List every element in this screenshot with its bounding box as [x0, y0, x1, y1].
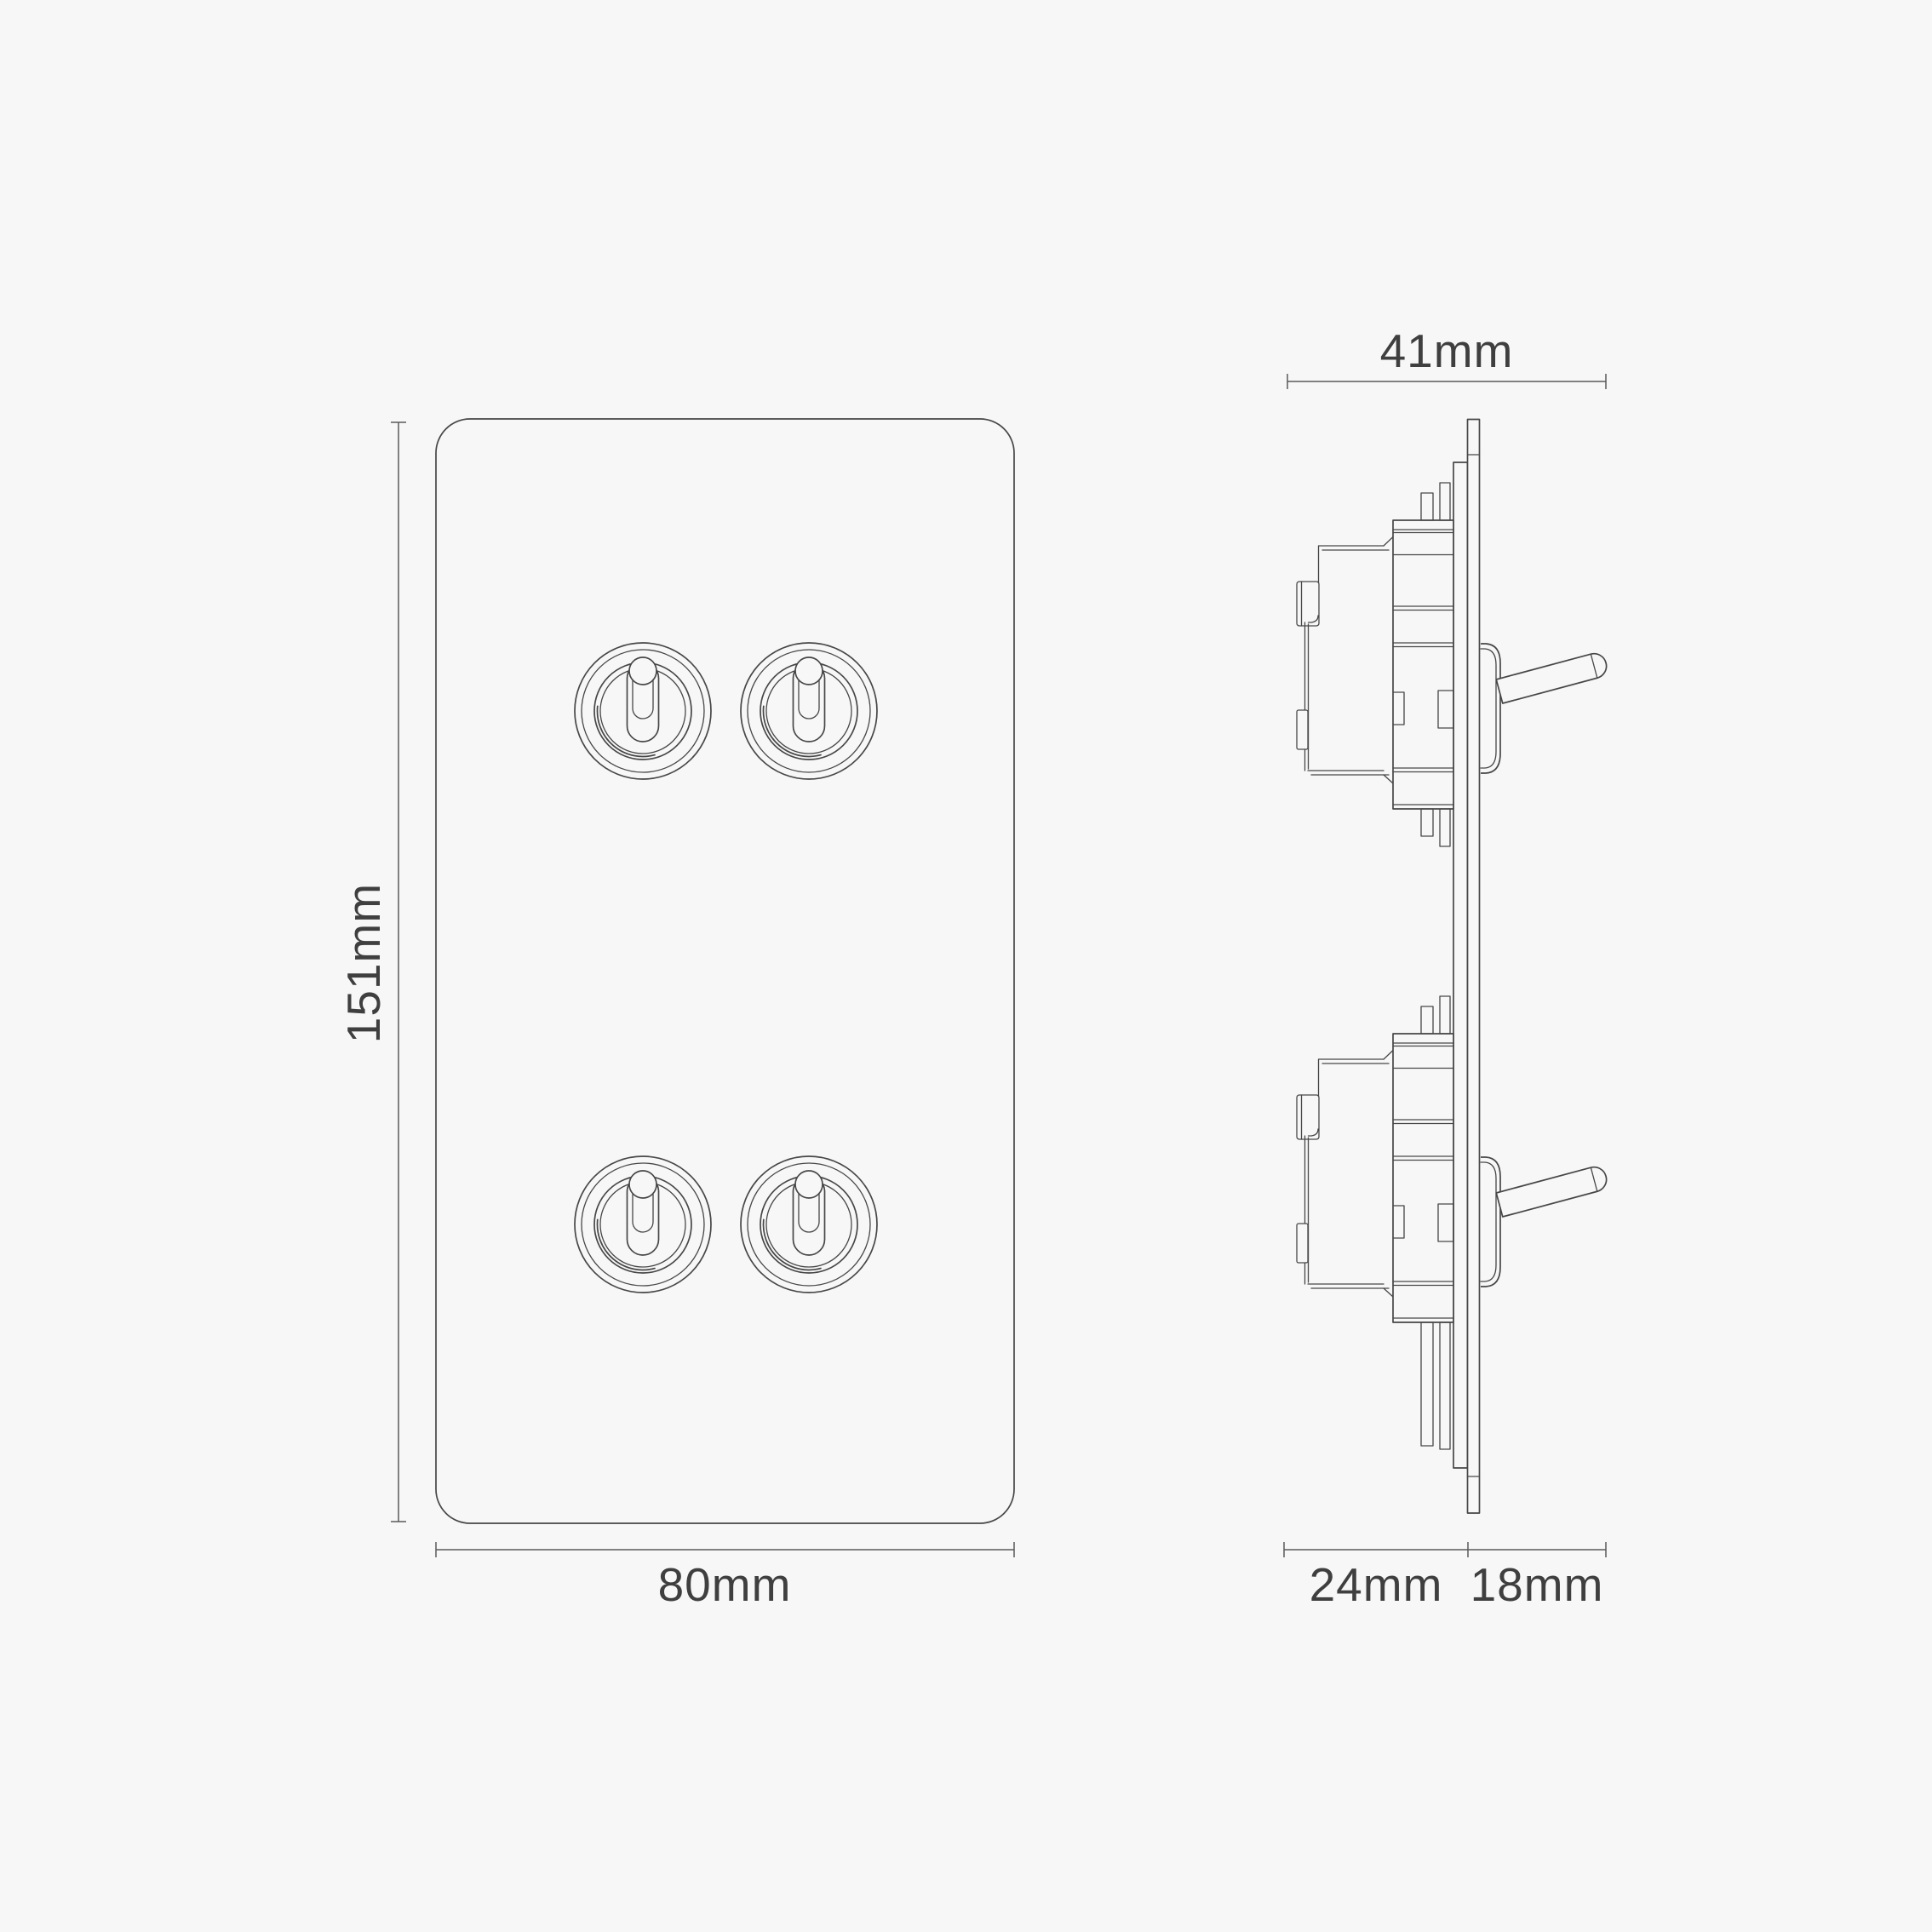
front-view — [436, 419, 1014, 1523]
side-mechanism-top — [1297, 520, 1453, 809]
toggle-switch-bottom-right — [741, 1156, 877, 1293]
depth-split-dimension: 24mm 18mm — [1284, 1542, 1606, 1611]
side-backing-frame — [1453, 462, 1468, 1468]
overall-depth-dimension: 41mm — [1287, 324, 1606, 389]
box-depth-dimension-label: 24mm — [1310, 1558, 1443, 1611]
side-view — [1297, 420, 1609, 1514]
side-toggle-lever-bottom — [1481, 1157, 1609, 1287]
switch-dimension-drawing: 151mm 80mm 41mm 24mm 18mm — [0, 0, 1932, 1932]
height-dimension: 151mm — [337, 422, 406, 1522]
side-mechanism-bottom — [1297, 1034, 1453, 1322]
width-dimension: 80mm — [436, 1542, 1014, 1611]
side-toggle-lever-top — [1481, 644, 1609, 773]
toggle-switch-top-left — [575, 643, 711, 779]
toggle-switch-bottom-left — [575, 1156, 711, 1293]
projection-dimension-label: 18mm — [1470, 1558, 1604, 1611]
dimension-drawing-page: 151mm 80mm 41mm 24mm 18mm — [0, 0, 1932, 1932]
dimensions: 151mm 80mm 41mm 24mm 18mm — [337, 324, 1606, 1611]
side-plate-edge — [1468, 420, 1480, 1514]
width-dimension-label: 80mm — [658, 1558, 792, 1611]
height-dimension-label: 151mm — [337, 883, 390, 1043]
front-plate — [436, 419, 1014, 1523]
toggle-switch-top-right — [741, 643, 877, 779]
overall-depth-dimension-label: 41mm — [1380, 324, 1514, 377]
